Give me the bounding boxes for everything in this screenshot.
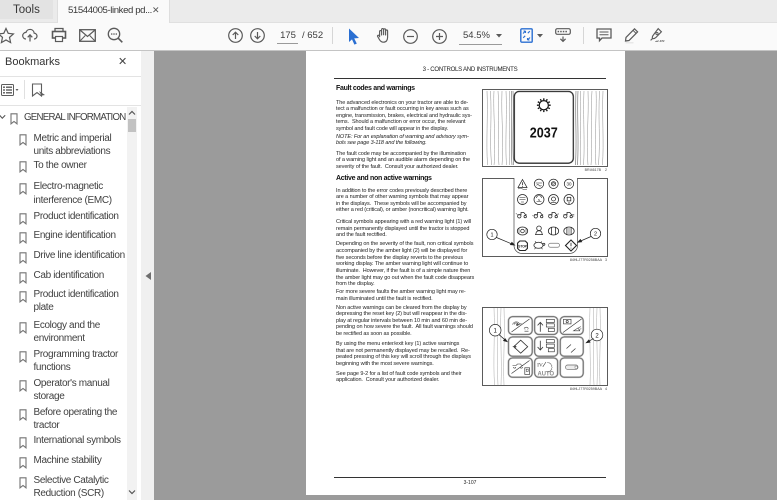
svg-text:IV: IV (537, 362, 543, 368)
svg-text:2: 2 (594, 231, 597, 237)
svg-text:2037: 2037 (530, 125, 558, 142)
svg-text:N: N (538, 198, 540, 202)
svg-text:1: 1 (490, 232, 493, 238)
svg-text:STOP: STOP (518, 244, 527, 248)
svg-text:AUTO: AUTO (538, 370, 555, 377)
svg-text:30: 30 (566, 181, 572, 186)
